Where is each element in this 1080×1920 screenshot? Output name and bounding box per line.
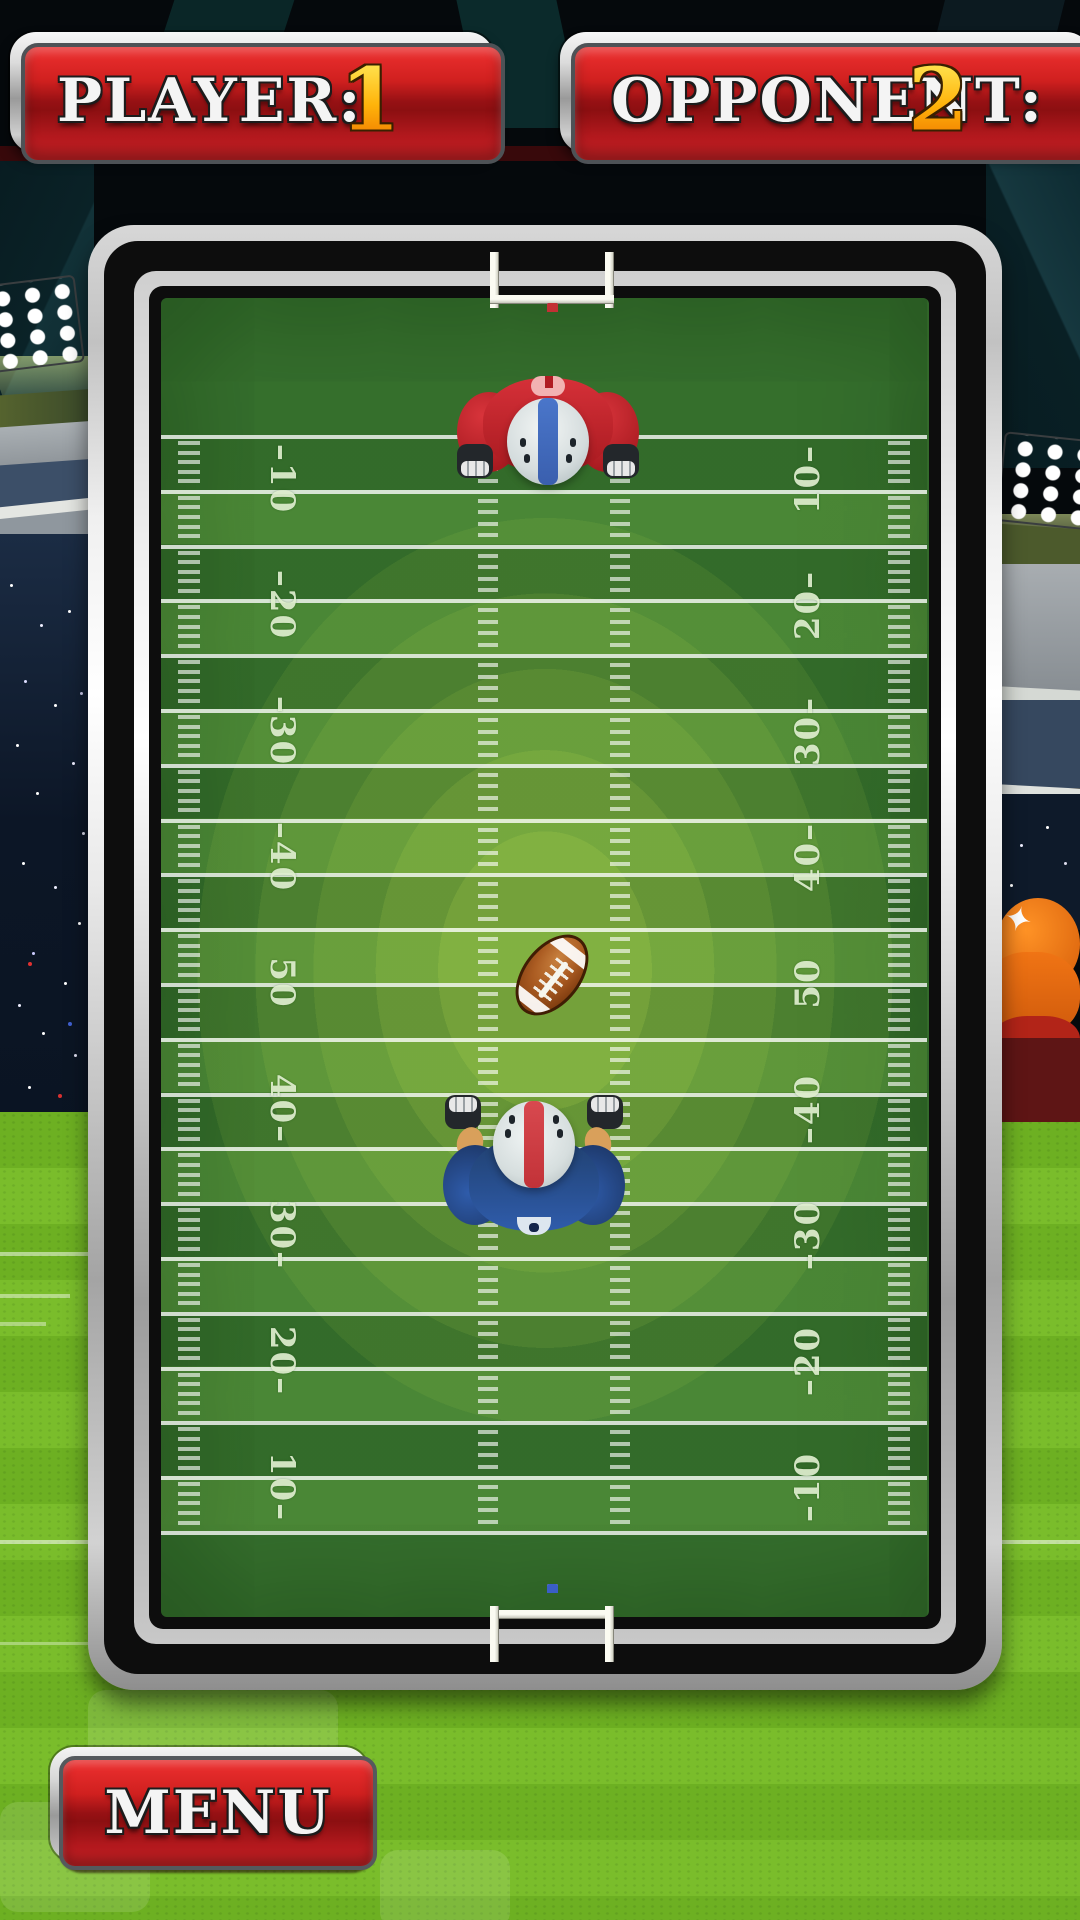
- hash-mark: [610, 773, 630, 777]
- hash-mark: [610, 796, 630, 800]
- helmet-vent: [566, 454, 572, 463]
- sideline-tick: [888, 1263, 910, 1267]
- sideline-tick: [888, 1273, 910, 1277]
- sideline-tick: [178, 634, 200, 638]
- yard-number: –40: [262, 822, 302, 892]
- sideline-tick: [178, 1447, 200, 1451]
- sideline-tick: [178, 699, 200, 703]
- sideline-tick: [888, 1192, 910, 1196]
- sideline-tick: [178, 1237, 200, 1241]
- sideline-tick: [178, 725, 200, 729]
- hash-mark: [478, 698, 498, 702]
- sideline-tick: [178, 863, 200, 867]
- sideline-tick: [888, 1292, 910, 1296]
- sideline-tick: [888, 644, 910, 648]
- hash-mark: [478, 631, 498, 635]
- hash-mark: [478, 741, 498, 745]
- sideline-tick: [888, 1099, 910, 1103]
- yard-number: 40–: [788, 822, 828, 892]
- hash-mark: [478, 1027, 498, 1031]
- hash-mark: [478, 1047, 498, 1051]
- sideline-tick: [178, 889, 200, 893]
- sideline-tick: [888, 899, 910, 903]
- player-collar-notch: [545, 376, 553, 388]
- sideline-tick: [888, 1447, 910, 1451]
- sideline-tick: [178, 505, 200, 509]
- hash-mark: [478, 1246, 498, 1250]
- hash-mark: [478, 1508, 498, 1512]
- sideline-tick: [178, 1163, 200, 1167]
- sideline-tick: [888, 744, 910, 748]
- yard-line: [161, 928, 927, 932]
- sideline-tick: [888, 496, 910, 500]
- sideline-tick: [178, 1427, 200, 1431]
- sideline-tick: [888, 570, 910, 574]
- hash-mark: [478, 905, 498, 909]
- hash-mark: [478, 663, 498, 667]
- sideline-tick: [888, 725, 910, 729]
- sideline-tick: [178, 1511, 200, 1515]
- hash-mark: [610, 753, 630, 757]
- sideline-tick: [888, 1247, 910, 1251]
- sideline-tick: [178, 753, 200, 757]
- sideline-tick: [888, 1053, 910, 1057]
- sideline-tick: [178, 1292, 200, 1296]
- sideline-tick: [178, 605, 200, 609]
- sideline-tick: [178, 441, 200, 445]
- sideline-tick: [178, 1263, 200, 1267]
- hash-mark: [610, 905, 630, 909]
- hash-mark: [610, 851, 630, 855]
- sideline-tick: [178, 808, 200, 812]
- sideline-tick: [888, 879, 910, 883]
- sideline-tick: [888, 441, 910, 445]
- yard-line: [161, 1312, 927, 1316]
- hash-mark: [478, 1453, 498, 1457]
- sideline-tick: [888, 1337, 910, 1341]
- hash-mark: [610, 1520, 630, 1524]
- hash-mark: [478, 1004, 498, 1008]
- hash-mark: [478, 1485, 498, 1489]
- hash-mark: [478, 1344, 498, 1348]
- sideline-tick: [178, 1456, 200, 1460]
- sideline-tick: [888, 825, 910, 829]
- hash-mark: [478, 972, 498, 976]
- sideline-tick: [888, 1456, 910, 1460]
- sideline-tick: [178, 1053, 200, 1057]
- sideline-tick: [178, 496, 200, 500]
- glove-fingers: [607, 461, 635, 476]
- sideline-tick: [178, 551, 200, 555]
- hash-mark: [478, 960, 498, 964]
- helmet-stripe: [538, 398, 558, 485]
- hash-mark: [478, 992, 498, 996]
- hash-mark: [478, 1442, 498, 1446]
- sideline-tick: [178, 1044, 200, 1048]
- hash-mark: [610, 1321, 630, 1325]
- sideline-tick: [888, 1008, 910, 1012]
- sideline-tick: [178, 615, 200, 619]
- hash-mark: [478, 1289, 498, 1293]
- sideline-tick: [888, 1218, 910, 1222]
- sideline-tick: [888, 1521, 910, 1525]
- sideline-tick: [178, 1073, 200, 1077]
- sideline-tick: [888, 1227, 910, 1231]
- hash-mark: [610, 1289, 630, 1293]
- hash-mark: [610, 686, 630, 690]
- sideline-tick: [888, 670, 910, 674]
- hash-mark: [610, 1465, 630, 1469]
- sideline-tick: [888, 1427, 910, 1431]
- sideline-tick: [888, 1108, 910, 1112]
- sideline-tick: [888, 834, 910, 838]
- sideline-tick: [178, 515, 200, 519]
- sideline-tick: [178, 779, 200, 783]
- hash-mark: [478, 1081, 498, 1085]
- field-frame-black-band: –1010––2020––3030––4040–505040––4030––30…: [104, 241, 986, 1674]
- sideline-tick: [888, 1282, 910, 1286]
- hash-mark: [610, 1266, 630, 1270]
- hash-mark: [478, 1520, 498, 1524]
- sideline-tick: [888, 1356, 910, 1360]
- sideline-tick: [178, 1208, 200, 1212]
- hash-mark: [478, 522, 498, 526]
- sideline-tick: [178, 1411, 200, 1415]
- sideline-tick: [888, 799, 910, 803]
- sideline-tick: [178, 734, 200, 738]
- helmet-icon: [493, 1101, 575, 1188]
- sideline-tick: [178, 918, 200, 922]
- hash-mark: [610, 643, 630, 647]
- sideline-tick: [888, 634, 910, 638]
- hash-mark: [610, 1508, 630, 1512]
- yard-number: –30: [788, 1200, 828, 1270]
- sideline-tick: [178, 853, 200, 857]
- grass-patch: [380, 1850, 510, 1920]
- sideline-tick: [888, 660, 910, 664]
- hash-mark: [610, 730, 630, 734]
- hash-mark: [478, 1465, 498, 1469]
- sideline-tick: [178, 899, 200, 903]
- goal-post-crossbar: [490, 1610, 614, 1619]
- sideline-tick: [178, 670, 200, 674]
- sideline-tick: [888, 1073, 910, 1077]
- sideline-tick: [888, 1163, 910, 1167]
- sideline-tick: [888, 779, 910, 783]
- hash-mark: [478, 675, 498, 679]
- yard-number: –10: [788, 1452, 828, 1522]
- sideline-tick: [178, 1282, 200, 1286]
- hash-mark: [610, 839, 630, 843]
- sideline-tick: [178, 1008, 200, 1012]
- player-score-panel: PLAYER: 1: [10, 32, 494, 153]
- sideline-tick: [888, 1082, 910, 1086]
- hash-mark: [610, 807, 630, 811]
- sideline-tick: [888, 560, 910, 564]
- sideline-tick: [888, 1327, 910, 1331]
- sideline-tick: [178, 1482, 200, 1486]
- sideline-tick: [178, 1347, 200, 1351]
- hash-mark: [610, 741, 630, 745]
- sideline-tick: [888, 889, 910, 893]
- sideline-tick: [888, 1127, 910, 1131]
- hash-mark: [478, 1301, 498, 1305]
- hash-mark: [610, 1070, 630, 1074]
- sideline-tick: [888, 451, 910, 455]
- sideline-tick: [178, 451, 200, 455]
- player-glove: [603, 444, 639, 478]
- hash-mark: [478, 1015, 498, 1019]
- sideline-tick: [888, 963, 910, 967]
- sideline-tick: [178, 1501, 200, 1505]
- hash-mark: [610, 675, 630, 679]
- player-score-label: PLAYER:: [57, 66, 362, 136]
- hash-mark: [610, 992, 630, 996]
- sideline-tick: [888, 1401, 910, 1405]
- sideline-tick: [178, 1063, 200, 1067]
- hash-mark: [610, 620, 630, 624]
- sideline-tick: [178, 625, 200, 629]
- hash-mark: [610, 1442, 630, 1446]
- sideline-tick: [178, 944, 200, 948]
- hash-mark: [478, 1321, 498, 1325]
- sideline-tick: [888, 715, 910, 719]
- sideline-tick: [888, 551, 910, 555]
- sideline-tick: [178, 1153, 200, 1157]
- hash-mark: [478, 917, 498, 921]
- helmet-stripe: [524, 1101, 544, 1188]
- yard-number: 30–: [788, 696, 828, 766]
- hash-mark: [610, 972, 630, 976]
- sideline-tick: [178, 534, 200, 538]
- hash-mark: [478, 1430, 498, 1434]
- hash-mark: [478, 882, 498, 886]
- hash-mark: [610, 608, 630, 612]
- hash-mark: [478, 949, 498, 953]
- sideline-tick: [178, 1521, 200, 1525]
- hash-mark: [610, 1332, 630, 1336]
- sideline-tick: [888, 989, 910, 993]
- hash-mark: [610, 1399, 630, 1403]
- sideline-tick: [888, 853, 910, 857]
- hash-mark: [610, 828, 630, 832]
- hash-mark: [610, 917, 630, 921]
- sideline-tick: [888, 525, 910, 529]
- sideline-tick: [888, 934, 910, 938]
- sideline-tick: [178, 715, 200, 719]
- hash-mark: [478, 565, 498, 569]
- glove-fingers: [461, 461, 489, 476]
- menu-button-label: MENU: [104, 1778, 331, 1848]
- sideline-tick: [178, 1182, 200, 1186]
- sideline-tick: [888, 1411, 910, 1415]
- sideline-tick: [888, 770, 910, 774]
- sideline-tick: [888, 1301, 910, 1305]
- sideline-tick: [178, 470, 200, 474]
- sideline-tick: [888, 1437, 910, 1441]
- goal-center-marker: [547, 1584, 558, 1610]
- hash-mark: [610, 1453, 630, 1457]
- sideline-tick: [178, 1318, 200, 1322]
- hash-mark: [478, 643, 498, 647]
- sideline-tick: [178, 589, 200, 593]
- sideline-tick: [888, 844, 910, 848]
- sideline-tick: [888, 1027, 910, 1031]
- sideline-tick: [178, 1373, 200, 1377]
- sideline-tick: [888, 1511, 910, 1515]
- hash-mark: [478, 784, 498, 788]
- goal-post-upright: [605, 1606, 614, 1662]
- sideline-tick: [178, 834, 200, 838]
- sideline-tick: [178, 1218, 200, 1222]
- hash-mark: [478, 686, 498, 690]
- hash-mark: [478, 796, 498, 800]
- sideline-tick: [178, 989, 200, 993]
- sideline-tick: [888, 679, 910, 683]
- crowd-left: [0, 534, 94, 1176]
- sideline-tick: [888, 1373, 910, 1377]
- sideline-tick: [888, 918, 910, 922]
- sideline-tick: [178, 1173, 200, 1177]
- helmet-vent: [557, 1129, 563, 1138]
- hash-mark: [610, 1410, 630, 1414]
- sideline-tick: [178, 1492, 200, 1496]
- sideline-tick: [888, 460, 910, 464]
- grass-yard-line: [0, 1294, 70, 1298]
- yard-number: –20: [788, 1326, 828, 1396]
- hash-mark: [610, 1387, 630, 1391]
- sideline-tick: [888, 734, 910, 738]
- player-character[interactable]: [443, 1093, 625, 1235]
- yard-number: 50: [788, 957, 828, 1008]
- opponent-score-value: 2: [893, 49, 983, 150]
- sideline-tick: [888, 589, 910, 593]
- sideline-tick: [178, 560, 200, 564]
- hash-mark: [610, 949, 630, 953]
- sideline-tick: [888, 1501, 910, 1505]
- menu-button-face: MENU: [59, 1756, 377, 1870]
- sideline-tick: [888, 1063, 910, 1067]
- hash-mark: [610, 565, 630, 569]
- sideline-tick: [888, 470, 910, 474]
- yard-line: [161, 545, 927, 549]
- hash-mark: [610, 1027, 630, 1031]
- hash-mark: [610, 554, 630, 558]
- yard-number: –20: [262, 570, 302, 640]
- hash-mark: [478, 588, 498, 592]
- hash-mark: [610, 862, 630, 866]
- yard-number: 10–: [788, 444, 828, 514]
- hash-mark: [610, 1376, 630, 1380]
- sideline-tick: [178, 1027, 200, 1031]
- sideline-tick: [888, 515, 910, 519]
- sideline-tick: [178, 1192, 200, 1196]
- helmet-vent: [505, 1129, 511, 1138]
- sideline-tick: [178, 770, 200, 774]
- sideline-tick: [888, 1118, 910, 1122]
- sideline-tick: [178, 1382, 200, 1386]
- hash-mark: [478, 894, 498, 898]
- hash-mark: [610, 631, 630, 635]
- sideline-tick: [178, 579, 200, 583]
- yard-number: 30–: [262, 1200, 302, 1270]
- helmet-vent: [553, 1115, 559, 1124]
- hash-mark: [478, 828, 498, 832]
- goal-center-marker: [547, 303, 558, 329]
- sideline-tick: [888, 863, 910, 867]
- sideline-tick: [178, 1082, 200, 1086]
- hash-mark: [610, 1246, 630, 1250]
- yard-line: [161, 1038, 927, 1042]
- sideline-tick: [888, 615, 910, 619]
- hash-mark: [610, 1344, 630, 1348]
- yard-number: 50: [262, 957, 302, 1008]
- sideline-tick: [178, 1099, 200, 1103]
- hash-mark: [478, 577, 498, 581]
- football-field[interactable]: –1010––2020––3030––4040–505040––4030––30…: [161, 298, 929, 1617]
- hash-mark: [478, 718, 498, 722]
- sideline-tick: [178, 934, 200, 938]
- helmet-vent: [520, 438, 526, 447]
- goal-post-top-icon: [490, 252, 618, 332]
- field-frame-inner-black: –1010––2020––3030––4040–505040––4030––30…: [149, 286, 941, 1629]
- sideline-tick: [888, 789, 910, 793]
- sideline-tick: [888, 1018, 910, 1022]
- hash-mark: [478, 1376, 498, 1380]
- sideline-tick: [178, 460, 200, 464]
- hash-mark: [610, 522, 630, 526]
- hash-mark: [610, 1497, 630, 1501]
- player-collar-notch: [529, 1223, 539, 1232]
- sideline-tick: [888, 1466, 910, 1470]
- sideline-tick: [888, 579, 910, 583]
- sideline-tick: [888, 534, 910, 538]
- sideline-tick: [888, 1492, 910, 1496]
- hash-mark: [610, 882, 630, 886]
- player-glove: [587, 1095, 623, 1129]
- sideline-tick: [888, 1318, 910, 1322]
- hash-mark: [610, 1430, 630, 1434]
- menu-button[interactable]: MENU: [50, 1747, 368, 1861]
- sideline-tick: [888, 1137, 910, 1141]
- hash-mark: [610, 937, 630, 941]
- sideline-tick: [178, 1301, 200, 1305]
- opponent-score-panel-face: OPPONENT: 2: [571, 43, 1080, 164]
- sideline-tick: [178, 973, 200, 977]
- hash-mark: [610, 510, 630, 514]
- opponent-score-panel: OPPONENT: 2: [560, 32, 1080, 153]
- sideline-tick: [888, 1208, 910, 1212]
- sideline-tick: [888, 1173, 910, 1177]
- hash-mark: [478, 1410, 498, 1414]
- sideline-tick: [178, 1137, 200, 1141]
- sideline-tick: [888, 1237, 910, 1241]
- goal-post-upright: [490, 1606, 499, 1662]
- sideline-tick: [178, 1356, 200, 1360]
- hash-mark: [478, 1332, 498, 1336]
- hash-mark: [478, 1266, 498, 1270]
- yard-number: –30: [262, 696, 302, 766]
- hash-mark: [610, 577, 630, 581]
- game-screen: ✦ –1010––2020––3030––4040–505040––4030––…: [0, 0, 1080, 1920]
- sideline-tick: [178, 825, 200, 829]
- hash-mark: [478, 1058, 498, 1062]
- sideline-tick: [888, 999, 910, 1003]
- hash-mark: [610, 1015, 630, 1019]
- sideline-tick: [888, 1482, 910, 1486]
- hash-mark: [478, 807, 498, 811]
- sideline-tick: [888, 908, 910, 912]
